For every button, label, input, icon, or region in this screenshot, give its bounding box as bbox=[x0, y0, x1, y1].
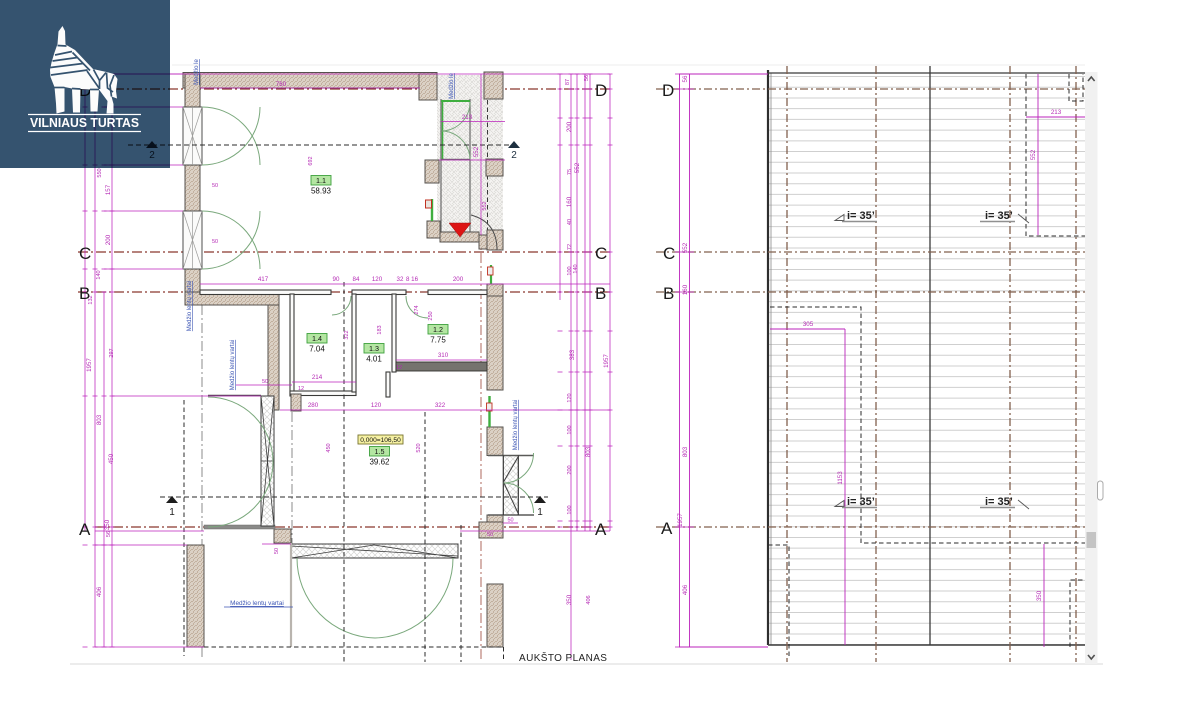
svg-text:1.1: 1.1 bbox=[316, 176, 326, 185]
svg-text:84: 84 bbox=[353, 276, 360, 283]
svg-text:1.5: 1.5 bbox=[375, 447, 385, 456]
svg-text:90: 90 bbox=[333, 276, 340, 283]
svg-text:406: 406 bbox=[96, 586, 103, 597]
svg-text:1.4: 1.4 bbox=[312, 334, 322, 343]
svg-text:2: 2 bbox=[511, 150, 517, 161]
svg-text:140: 140 bbox=[96, 270, 102, 279]
svg-text:Medžio le: Medžio le bbox=[449, 73, 455, 99]
svg-text:Medžio lentų vartai: Medžio lentų vartai bbox=[187, 281, 193, 331]
svg-text:56: 56 bbox=[682, 75, 689, 82]
svg-text:75: 75 bbox=[567, 169, 573, 175]
svg-text:B: B bbox=[79, 284, 90, 303]
svg-text:213: 213 bbox=[462, 114, 473, 121]
svg-text:406: 406 bbox=[586, 595, 592, 604]
svg-text:250: 250 bbox=[428, 311, 434, 320]
svg-text:120: 120 bbox=[371, 402, 382, 409]
svg-text:Medžio lentų vartai: Medžio lentų vartai bbox=[230, 600, 284, 607]
svg-text:56: 56 bbox=[106, 531, 112, 537]
svg-text:1957: 1957 bbox=[677, 513, 684, 527]
svg-text:2: 2 bbox=[149, 150, 155, 161]
svg-text:A: A bbox=[661, 519, 673, 538]
svg-text:803: 803 bbox=[682, 446, 689, 457]
svg-text:157: 157 bbox=[105, 184, 112, 195]
svg-text:1153: 1153 bbox=[837, 471, 844, 485]
svg-text:322: 322 bbox=[344, 330, 350, 339]
svg-text:350: 350 bbox=[104, 519, 111, 530]
svg-text:1: 1 bbox=[169, 507, 175, 518]
svg-text:200: 200 bbox=[567, 465, 573, 474]
svg-text:50: 50 bbox=[262, 379, 268, 385]
svg-text:B: B bbox=[595, 284, 606, 303]
svg-text:552: 552 bbox=[682, 242, 689, 253]
svg-text:50: 50 bbox=[507, 518, 513, 524]
svg-text:120: 120 bbox=[567, 393, 573, 402]
svg-text:72: 72 bbox=[567, 244, 573, 250]
svg-text:280: 280 bbox=[308, 402, 319, 409]
svg-text:520: 520 bbox=[416, 443, 422, 452]
svg-text:32: 32 bbox=[397, 276, 404, 283]
svg-text:1957: 1957 bbox=[603, 354, 610, 368]
svg-text:Medžio lentų vartai: Medžio lentų vartai bbox=[230, 340, 236, 390]
svg-text:350: 350 bbox=[566, 594, 573, 605]
svg-text:692: 692 bbox=[308, 156, 314, 165]
svg-text:12: 12 bbox=[396, 365, 402, 371]
svg-text:A: A bbox=[595, 520, 607, 539]
svg-text:450: 450 bbox=[326, 443, 332, 452]
svg-text:7.04: 7.04 bbox=[309, 345, 325, 354]
svg-text:58.93: 58.93 bbox=[311, 187, 332, 196]
svg-text:50: 50 bbox=[487, 532, 493, 538]
svg-text:VILNIAUS TURTAS: VILNIAUS TURTAS bbox=[30, 115, 139, 130]
svg-text:50: 50 bbox=[212, 183, 218, 189]
svg-text:803: 803 bbox=[96, 414, 103, 425]
svg-text:87: 87 bbox=[565, 79, 571, 85]
svg-text:1.3: 1.3 bbox=[369, 344, 379, 353]
svg-text:322: 322 bbox=[435, 402, 446, 409]
svg-text:305: 305 bbox=[803, 321, 814, 328]
svg-text:D: D bbox=[595, 81, 607, 100]
svg-text:1: 1 bbox=[537, 507, 543, 518]
svg-text:383: 383 bbox=[569, 349, 576, 360]
svg-text:50: 50 bbox=[212, 239, 218, 245]
svg-text:200: 200 bbox=[105, 234, 112, 245]
svg-text:C: C bbox=[663, 244, 675, 263]
svg-text:8 16: 8 16 bbox=[406, 276, 419, 283]
svg-text:Medžio lentų vartai: Medžio lentų vartai bbox=[513, 400, 519, 450]
svg-text:552: 552 bbox=[574, 162, 581, 173]
svg-text:450: 450 bbox=[108, 453, 115, 464]
svg-text:4.01: 4.01 bbox=[366, 355, 382, 364]
svg-text:100: 100 bbox=[567, 425, 573, 434]
svg-text:1.2: 1.2 bbox=[433, 325, 443, 334]
svg-text:C: C bbox=[595, 244, 607, 263]
svg-text:160: 160 bbox=[566, 196, 573, 207]
svg-text:C: C bbox=[79, 244, 91, 263]
svg-text:310: 310 bbox=[438, 352, 449, 359]
svg-text:1957: 1957 bbox=[86, 358, 93, 372]
svg-text:213: 213 bbox=[1051, 109, 1062, 116]
svg-text:Medžio le: Medžio le bbox=[194, 59, 200, 85]
svg-text:i= 35’: i= 35’ bbox=[847, 210, 875, 222]
svg-text:100: 100 bbox=[567, 505, 573, 514]
svg-text:i= 35’: i= 35’ bbox=[985, 496, 1013, 508]
svg-text:214: 214 bbox=[312, 374, 323, 381]
svg-text:120: 120 bbox=[372, 276, 383, 283]
svg-text:552: 552 bbox=[1030, 149, 1037, 160]
svg-text:200: 200 bbox=[453, 276, 464, 283]
svg-text:183: 183 bbox=[377, 325, 383, 334]
svg-text:160: 160 bbox=[682, 284, 689, 295]
svg-text:297: 297 bbox=[109, 348, 115, 357]
svg-text:AUKŠTO PLANAS: AUKŠTO PLANAS bbox=[519, 651, 607, 664]
svg-text:40: 40 bbox=[567, 219, 573, 225]
svg-text:D: D bbox=[662, 81, 674, 100]
svg-text:50: 50 bbox=[274, 548, 280, 554]
svg-text:552: 552 bbox=[482, 201, 488, 210]
svg-text:550: 550 bbox=[97, 168, 103, 177]
svg-text:406: 406 bbox=[682, 584, 689, 595]
svg-text:350: 350 bbox=[1036, 590, 1043, 601]
svg-text:7.75: 7.75 bbox=[430, 336, 446, 345]
svg-text:i= 35’: i= 35’ bbox=[847, 496, 875, 508]
svg-text:A: A bbox=[79, 520, 91, 539]
svg-text:274: 274 bbox=[414, 305, 420, 314]
svg-text:552: 552 bbox=[473, 146, 480, 157]
svg-text:760: 760 bbox=[276, 81, 287, 88]
svg-text:B: B bbox=[663, 284, 674, 303]
svg-text:i= 35’: i= 35’ bbox=[985, 210, 1013, 222]
svg-text:803: 803 bbox=[585, 446, 592, 457]
svg-text:12: 12 bbox=[298, 386, 304, 392]
svg-text:39.62: 39.62 bbox=[369, 458, 390, 467]
svg-text:417: 417 bbox=[258, 276, 269, 283]
svg-text:56: 56 bbox=[584, 75, 590, 81]
svg-text:140: 140 bbox=[573, 264, 579, 273]
svg-text:0,000=106,50: 0,000=106,50 bbox=[360, 437, 401, 444]
svg-text:200: 200 bbox=[566, 121, 573, 132]
